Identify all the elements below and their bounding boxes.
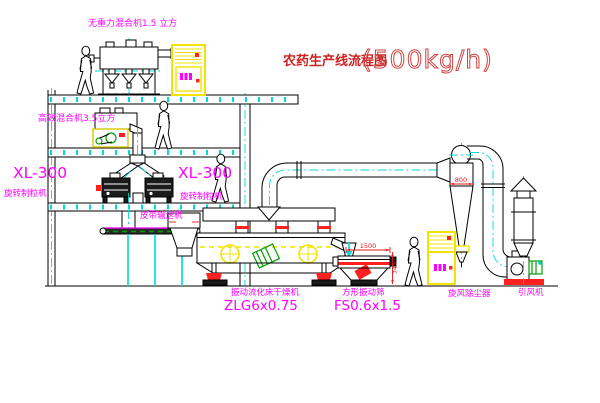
- label-sieve-name: 方形振动筛: [342, 287, 385, 298]
- page-title-capacity: (500kg/h): [362, 45, 493, 74]
- square-vibrating-sieve: 1500 345: [331, 238, 399, 285]
- sieve-length-dimension: 1500: [360, 242, 377, 250]
- label-granulator-right-name: 旋转制粒机: [180, 191, 223, 202]
- label-granulator-left-name: 旋转制粒机: [4, 188, 47, 199]
- label-dryer-model: ZLG6x0.75: [224, 298, 298, 314]
- flow-diagram-canvas: 800: [0, 0, 600, 403]
- label-gravity-mixer: 无重力混合机1.5 立方: [88, 17, 177, 29]
- fluid-bed-dryer: [197, 208, 345, 285]
- granulator-right: [145, 173, 173, 203]
- control-cabinet-2: [428, 232, 455, 284]
- label-granulator-right-model: XL-300: [178, 164, 232, 182]
- person-figure-top-floor: [77, 46, 94, 94]
- label-efficiency-mixer: 高效混合机3.5立方: [38, 112, 115, 124]
- label-belt-conveyor: 皮带输送机: [140, 210, 183, 221]
- fan-motor: [529, 261, 542, 274]
- person-figure-mid-floor: [155, 101, 172, 149]
- control-cabinet-1: [172, 45, 205, 95]
- label-fan-name: 引风机: [518, 287, 544, 298]
- label-dryer-name: 振动流化床干燥机: [231, 287, 300, 298]
- process-flow-drawing: 800: [0, 0, 600, 403]
- gravity-free-mixer: [89, 38, 171, 95]
- label-granulator-left-model: XL-300: [13, 164, 67, 182]
- granulator-left: [96, 173, 130, 203]
- label-cyclone-name: 旋风除尘器: [448, 288, 491, 299]
- cyclone-dimension: 800: [455, 176, 467, 184]
- sieve-height-dimension: 345: [391, 262, 399, 274]
- mixer-discharge-valves: [105, 69, 153, 88]
- label-sieve-model: FS0.6x1.5: [334, 298, 401, 314]
- person-figure-ground: [405, 237, 422, 286]
